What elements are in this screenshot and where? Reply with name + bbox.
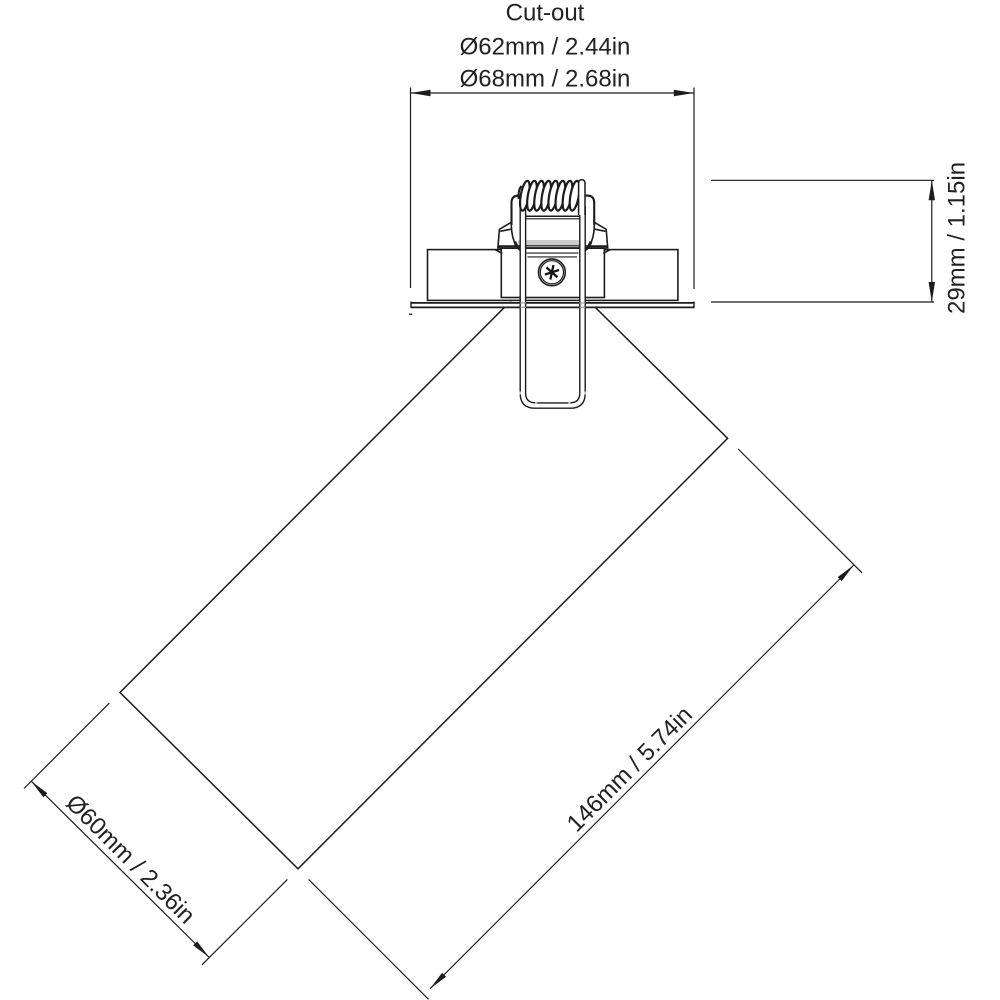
svg-text:29mm / 1.15in: 29mm / 1.15in [944,162,971,314]
svg-text:Cut-out: Cut-out [506,0,585,27]
svg-text:Ø62mm / 2.44in: Ø62mm / 2.44in [460,34,631,61]
svg-text:Ø68mm / 2.68in: Ø68mm / 2.68in [460,66,631,93]
